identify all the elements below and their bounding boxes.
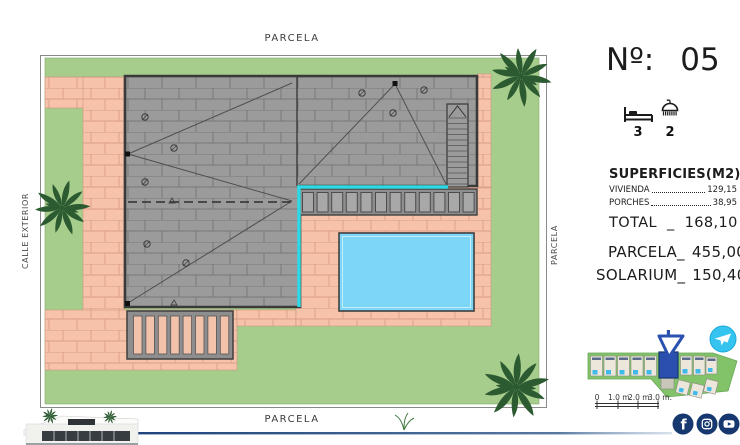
surface-label: VIVIENDA [609,185,650,195]
plan-sheet: PARCELA PARCELA PARCELA CALLE EXTERIOR N… [0,0,740,445]
label-parcela-top: PARCELA [240,33,344,44]
path-connector [237,310,296,326]
label-parcela-bottom: PARCELA [240,414,344,425]
swimming-pool [339,233,474,311]
label-calle-exterior: CALLE EXTERIOR [21,188,33,274]
instagram-icon[interactable] [696,413,718,435]
total-value: 168,10 [685,215,738,231]
surfaces-total: TOTAL _ 168,10 [609,215,737,231]
path-left-band [83,77,124,312]
minimap-plots [591,352,719,398]
surface-row-vivienda: VIVIENDA 129,15 [609,185,737,195]
plot-number: Nº: 05 [606,42,738,78]
surface-value: 129,15 [707,185,737,195]
path-right-strip [477,74,491,188]
dotted-leader [652,192,706,193]
solarium-area-label: SOLARIUM_ [596,264,685,287]
grass-tuft [395,413,414,430]
bathroom-count: 2 [657,125,683,140]
stairs [447,104,468,187]
solarium-area-row: SOLARIUM_ 150,40 [596,264,740,287]
label-parcela-right: PARCELA [550,220,562,270]
scale-tick-3: 3.0 m. [645,393,675,402]
bedroom-count: 3 [621,125,655,140]
footer-rule [98,432,672,434]
porch-beams [300,189,477,215]
youtube-icon[interactable] [718,413,740,435]
surfaces-title: SUPERFICIES(M2) [609,167,737,182]
pergola [127,311,233,359]
areas-panel: PARCELA_ 455,00 SOLARIUM_ 150,40 [596,241,740,286]
surface-value: 38,95 [713,198,737,208]
parcela-area-value: 455,00 [692,241,740,264]
parcela-area-row: PARCELA_ 455,00 [608,241,740,264]
plot-number-label: Nº: [606,42,654,78]
surface-row-porches: PORCHES 38,95 [609,198,737,208]
surface-label: PORCHES [609,198,649,208]
plot-number-value: 05 [680,42,719,78]
bed-icon [621,103,655,125]
shower-icon [657,99,683,124]
total-label: TOTAL [609,215,657,231]
facebook-icon[interactable]: f [672,413,694,435]
compass-icon [707,323,739,355]
svg-text:f: f [680,418,687,434]
total-separator: _ [667,215,675,231]
scale-tick-0: 0 [587,393,607,402]
solarium-area-value: 150,40 [692,264,740,287]
parcela-area-label: PARCELA_ [608,241,685,264]
villa-photo [24,408,138,445]
surfaces-panel: SUPERFICIES(M2) VIVIENDA 129,15 PORCHES … [609,167,737,231]
dotted-leader [651,205,710,206]
